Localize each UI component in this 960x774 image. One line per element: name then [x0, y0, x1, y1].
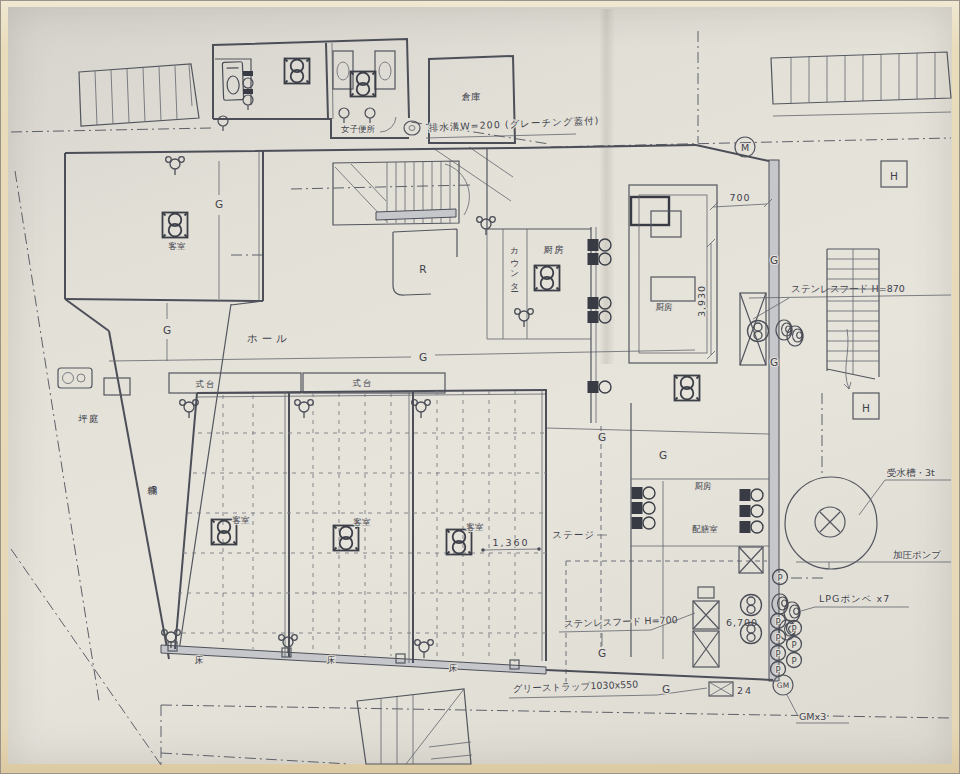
- label-womens-toilet: 女子便所: [341, 124, 376, 134]
- equipment-symbol-icon: [285, 59, 310, 84]
- floor-plan-scan-photo: H 女子便所: [0, 0, 960, 774]
- label-counter: カウンター: [510, 241, 520, 292]
- entrance-steps: [357, 689, 472, 764]
- equipment-symbol-icon: [447, 530, 472, 555]
- fixture-icon: [740, 489, 764, 501]
- note-gm-count: GMx3: [799, 711, 826, 722]
- mark-g: G: [662, 683, 670, 695]
- sprinkler-icon: [415, 640, 434, 658]
- fixture-icon: [632, 502, 656, 514]
- mark-g: G: [659, 449, 667, 461]
- lpg-coil-icon: [784, 602, 800, 622]
- fixture-icon: [588, 297, 612, 309]
- mark-g: G: [215, 198, 223, 210]
- dim-700: 700: [729, 192, 750, 203]
- label-kitchen: 厨房: [544, 244, 565, 255]
- label-guest-room: 客室: [233, 515, 251, 525]
- note-water-tank: 受水槽・3t: [887, 467, 935, 478]
- mark-p: P: [791, 640, 796, 650]
- basin-icon: [339, 108, 349, 123]
- banquet-rooms: 客室 客室 客室 1,360 床 床 床: [162, 389, 546, 673]
- label-guest-room: 客室: [169, 241, 187, 251]
- note-hood-870: ステンレスフード H=870: [791, 283, 905, 294]
- mark-p: P: [791, 624, 796, 634]
- dim-3930: 3,930: [696, 285, 707, 317]
- equipment-notes: ステンレスフード H=870 ステンレスフード H=700 6,700 グリース…: [509, 283, 951, 698]
- mark-g: G: [419, 351, 427, 363]
- label-storage: 倉庫: [462, 91, 482, 102]
- fixture-icon: [632, 517, 656, 529]
- label-floor: 床: [327, 655, 336, 665]
- mark-g: G: [770, 254, 778, 266]
- toilet-icon: [222, 62, 243, 101]
- drain-gutter-note: 排水溝W=200 (グレーチング蓋付): [426, 115, 599, 138]
- label-guest-room: 客室: [354, 517, 372, 527]
- toilet-block: 女子便所: [213, 39, 420, 138]
- note-grease-trap: グリーストラップ1030x550: [513, 679, 639, 694]
- mark-p: P: [775, 649, 780, 659]
- mark-gm: GM: [777, 681, 789, 690]
- mark-h: H: [862, 402, 870, 414]
- fixture-icon: [588, 253, 612, 265]
- label-stage: ステージ: [552, 529, 595, 540]
- label-kitchen: 厨房: [656, 302, 673, 312]
- basin-icon: [365, 108, 375, 123]
- mark-p: P: [777, 573, 782, 583]
- mark-p: P: [791, 656, 796, 666]
- fixture-icon: [588, 381, 612, 393]
- equipment-symbol-icon: [351, 72, 376, 97]
- exterior-stair-right: H: [827, 249, 879, 419]
- label-floor: 床: [449, 663, 458, 673]
- label-shikidai: 式台: [353, 378, 374, 388]
- mark-g: G: [770, 356, 778, 368]
- hall-area: ホール 式台 式台 坪庭 縁側 客室: [58, 157, 695, 497]
- label-pantry: 配膳室: [692, 524, 718, 534]
- note-lpg: LPGボンベ x7: [819, 593, 890, 604]
- sprinkler-icon: [295, 400, 314, 418]
- mark-h: H: [890, 170, 898, 182]
- equipment-symbol-icon: [675, 376, 700, 401]
- fixture-icon: [588, 311, 612, 323]
- label-shikidai: 式台: [196, 379, 217, 389]
- note-drain-gutter: 排水溝W=200 (グレーチング蓋付): [428, 115, 600, 133]
- sprinkler-icon: [515, 309, 534, 327]
- mark-m: M: [741, 142, 749, 153]
- gas-meter-icon: [741, 595, 762, 616]
- sprinkler-icon: [477, 217, 496, 235]
- label-guest-room: 客室: [467, 522, 485, 532]
- label-floor: 床: [195, 655, 204, 665]
- floor-plan-drawing: H 女子便所: [1, 1, 959, 773]
- label-hall: ホール: [247, 332, 291, 344]
- mark-g: G: [598, 647, 606, 659]
- mark-p: P: [775, 633, 780, 643]
- label-kitchen: 厨房: [695, 481, 712, 491]
- parking-hatch-band: [771, 52, 951, 116]
- mark-g: G: [163, 324, 171, 336]
- label-r-mark: R: [419, 263, 426, 275]
- equipment-symbol-icon: [334, 526, 359, 551]
- lpg-coil-icon: [787, 326, 803, 346]
- gas-meter-icon: [748, 321, 769, 342]
- fixture-icon: [632, 487, 656, 499]
- mark-p: P: [775, 665, 780, 675]
- boundary-lines: [11, 31, 951, 765]
- mark-g: G: [598, 431, 606, 443]
- fixture-icon: [740, 521, 764, 533]
- mark-p: P: [775, 617, 780, 627]
- equipment-symbol-icon: [163, 213, 188, 238]
- label-veranda: 縁側: [147, 477, 158, 496]
- mark-24: 24: [737, 685, 753, 696]
- sprinkler-icon: [166, 157, 185, 175]
- fixture-icon: [740, 505, 764, 517]
- sprinkler-icon: [412, 400, 431, 418]
- note-pressure-pump: 加圧ポンプ: [893, 549, 941, 560]
- equipment-symbol-icon: [535, 266, 560, 291]
- fixture-icon: [588, 239, 612, 251]
- gas-marks: G G G G G G G G G: [163, 198, 778, 695]
- stage-service-zone: ステージ 厨房 配膳室 24: [552, 293, 769, 696]
- h-mark-top: H: [881, 161, 907, 187]
- note-hood-700: ステンレスフード H=700: [564, 614, 678, 629]
- exterior-stair-left: [79, 64, 199, 126]
- label-courtyard: 坪庭: [78, 413, 100, 424]
- dim-1360: 1,360: [492, 537, 529, 548]
- interior-stair: R: [291, 161, 471, 295]
